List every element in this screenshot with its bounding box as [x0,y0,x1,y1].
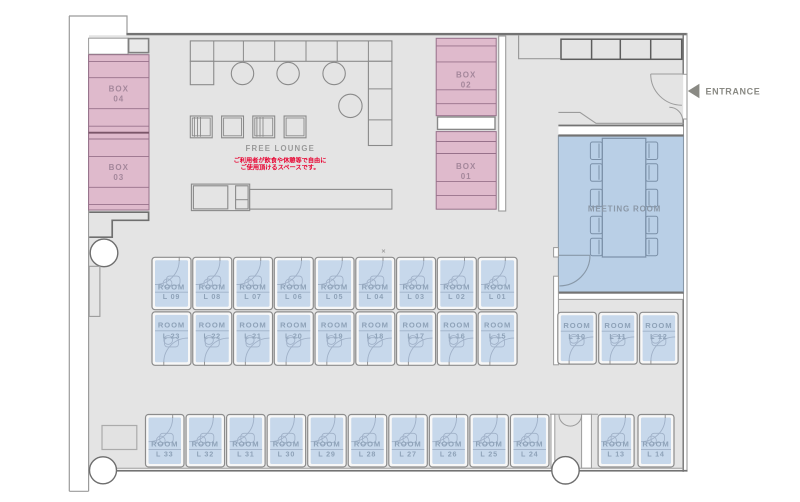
svg-text:L 12: L 12 [650,332,667,341]
svg-text:L 28: L 28 [359,449,376,458]
svg-text:ROOM: ROOM [484,283,511,292]
svg-text:ROOM: ROOM [280,283,307,292]
svg-text:ROOM: ROOM [313,440,340,449]
svg-text:MEETING ROOM: MEETING ROOM [588,205,661,214]
svg-text:ROOM: ROOM [239,283,266,292]
svg-text:ROOM: ROOM [443,283,470,292]
svg-text:ROOM: ROOM [602,440,629,449]
svg-text:ROOM: ROOM [645,321,672,330]
svg-text:L 13: L 13 [607,449,624,458]
svg-text:ROOM: ROOM [354,440,381,449]
svg-text:L 05: L 05 [326,292,343,301]
svg-text:ROOM: ROOM [402,283,429,292]
svg-text:L 17: L 17 [407,332,424,341]
svg-text:L 16: L 16 [448,332,465,341]
svg-text:ROOM: ROOM [321,321,348,330]
svg-text:ENTRANCE: ENTRANCE [706,87,761,97]
svg-text:ROOM: ROOM [642,440,669,449]
svg-text:L 18: L 18 [367,332,384,341]
svg-text:L 09: L 09 [163,292,180,301]
svg-text:ROOM: ROOM [563,321,590,330]
svg-text:L 11: L 11 [609,332,626,341]
svg-text:L 21: L 21 [244,332,261,341]
svg-text:ROOM: ROOM [151,440,178,449]
svg-text:ROOM: ROOM [394,440,421,449]
svg-text:L 26: L 26 [440,449,457,458]
svg-text:ROOM: ROOM [604,321,631,330]
svg-text:03: 03 [113,173,124,182]
svg-text:01: 01 [461,172,472,181]
svg-text:L 20: L 20 [285,332,302,341]
svg-text:ROOM: ROOM [484,321,511,330]
svg-text:ROOM: ROOM [273,440,300,449]
svg-text:ROOM: ROOM [443,321,470,330]
svg-text:ROOM: ROOM [232,440,259,449]
svg-text:L 30: L 30 [278,449,295,458]
svg-text:FREE LOUNGE: FREE LOUNGE [246,144,316,153]
svg-text:ROOM: ROOM [158,283,185,292]
svg-text:BOX: BOX [109,163,129,172]
svg-text:L 07: L 07 [244,292,261,301]
svg-text:02: 02 [461,81,472,90]
svg-text:ROOM: ROOM [239,321,266,330]
svg-text:ROOM: ROOM [362,321,389,330]
svg-text:04: 04 [113,95,124,104]
svg-text:L 33: L 33 [156,449,173,458]
svg-text:L 01: L 01 [489,292,506,301]
svg-text:ROOM: ROOM [158,321,185,330]
svg-text:L 19: L 19 [326,332,343,341]
svg-text:ROOM: ROOM [362,283,389,292]
svg-text:BOX: BOX [109,85,129,94]
svg-text:ご使用頂けるスペースです。: ご使用頂けるスペースです。 [240,164,319,172]
svg-text:BOX: BOX [456,71,476,80]
svg-text:L 15: L 15 [489,332,506,341]
svg-text:L 23: L 23 [163,332,180,341]
svg-text:ご利用者が飲食や休憩等で自由に: ご利用者が飲食や休憩等で自由に [234,157,327,165]
svg-text:L 08: L 08 [204,292,221,301]
svg-text:L 29: L 29 [318,449,335,458]
svg-text:L 22: L 22 [204,332,221,341]
svg-text:L 31: L 31 [237,449,254,458]
svg-text:L 24: L 24 [521,449,538,458]
svg-text:ROOM: ROOM [476,440,503,449]
svg-text:L 27: L 27 [399,449,416,458]
svg-text:ROOM: ROOM [199,321,226,330]
svg-text:L 02: L 02 [448,292,465,301]
svg-text:ROOM: ROOM [280,321,307,330]
svg-text:L 10: L 10 [568,332,585,341]
svg-text:ROOM: ROOM [435,440,462,449]
svg-text:BOX: BOX [456,162,476,171]
svg-text:ROOM: ROOM [199,283,226,292]
svg-text:L 06: L 06 [285,292,302,301]
svg-text:L 14: L 14 [647,449,664,458]
svg-text:L 03: L 03 [407,292,424,301]
svg-text:L 32: L 32 [197,449,214,458]
svg-text:ROOM: ROOM [516,440,543,449]
svg-text:L 25: L 25 [480,449,497,458]
svg-text:ROOM: ROOM [321,283,348,292]
svg-text:ROOM: ROOM [192,440,219,449]
svg-text:L 04: L 04 [367,292,384,301]
svg-text:ROOM: ROOM [402,321,429,330]
